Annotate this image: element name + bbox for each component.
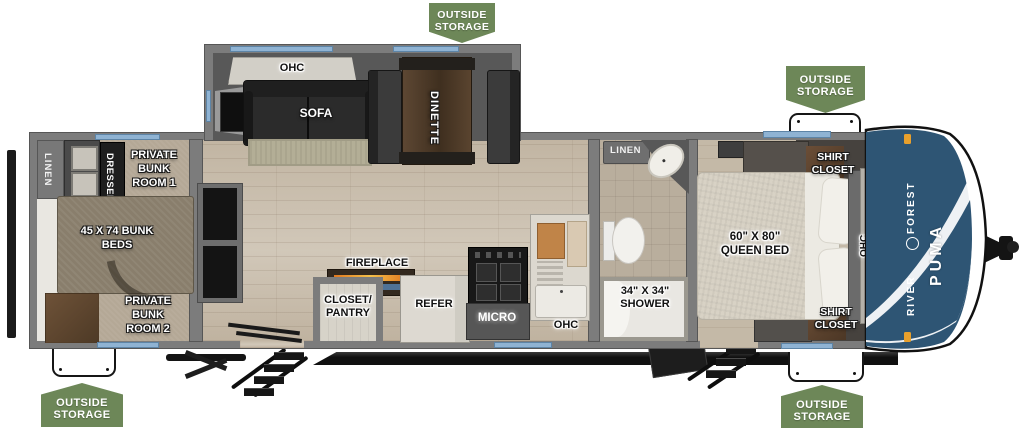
- linen-rear-label: LINEN: [42, 148, 53, 192]
- shower-label: 34" X 34" SHOWER: [606, 285, 684, 311]
- storage-door-bottom-left: [52, 349, 116, 377]
- badge-text: STORAGE: [41, 409, 123, 421]
- dinette-bench-right: [487, 70, 520, 164]
- outside-storage-badge-bottom-right: OUTSIDE STORAGE: [781, 385, 863, 428]
- rear-bumper: [7, 150, 16, 338]
- brand-puma: PUMA: [928, 206, 946, 286]
- cutting-board: [537, 223, 565, 259]
- bunk-room-1-label: PRIVATE BUNK ROOM 1: [124, 148, 184, 190]
- window-slide-side: [206, 90, 211, 122]
- window-bedroom-top: [763, 131, 831, 138]
- badge-text: STORAGE: [781, 411, 863, 423]
- dinette-bench-left: [368, 70, 402, 164]
- shirt-closet-top-label: SHIRT CLOSET: [802, 151, 864, 177]
- ohc-kitchen-label: OHC: [544, 319, 588, 331]
- bunkroom-wood-cabinet: [45, 293, 99, 343]
- kitchen-counter: [530, 214, 590, 321]
- front-cap: [864, 122, 990, 356]
- refer-label: REFER: [402, 298, 466, 310]
- badge-text: OUTSIDE: [429, 9, 495, 21]
- brand-forest-river: FOREST: [906, 168, 917, 234]
- badge-text: OUTSIDE: [786, 74, 865, 86]
- bunk-beds-label: 45 X 74 BUNK BEDS: [72, 224, 162, 252]
- outside-storage-badge-bottom-left: OUTSIDE STORAGE: [41, 383, 123, 427]
- window-slide-2: [393, 46, 459, 52]
- badge-text: STORAGE: [786, 86, 865, 98]
- fireplace-label: FIREPLACE: [332, 257, 422, 269]
- window-slide-1: [230, 46, 333, 52]
- bunkroom-cabinet: [64, 140, 100, 199]
- window-rear-top: [95, 134, 160, 140]
- window-bedroom-bottom: [781, 343, 833, 349]
- window-rear-bottom: [97, 342, 159, 348]
- badge-text: STORAGE: [429, 21, 495, 33]
- floorplan-canvas: OUTSIDE STORAGE OUTSIDE STORAGE OUTSIDE …: [0, 0, 1024, 441]
- outside-storage-badge-top-right: OUTSIDE STORAGE: [786, 66, 865, 113]
- badge-text: OUTSIDE: [41, 397, 123, 409]
- shirt-closet-bottom-label: SHIRT CLOSET: [802, 306, 870, 332]
- dinette-label: DINETTE: [428, 83, 440, 153]
- entry-steps-main: [226, 344, 318, 400]
- cap-logo-emblem: [906, 237, 919, 250]
- badge-text: OUTSIDE: [781, 399, 863, 411]
- toilet: [603, 215, 645, 265]
- linen-bath-label: LINEN: [603, 145, 648, 156]
- micro-label: MICRO: [470, 312, 524, 324]
- brand-forest-river-2: RIVER: [906, 252, 917, 316]
- wall-bath-left: [589, 140, 599, 341]
- entertainment-center: [197, 183, 243, 303]
- closet-pantry-label: CLOSET/ PANTRY: [316, 294, 380, 320]
- kitchen-sink: [535, 285, 587, 318]
- stove: [468, 247, 528, 306]
- rug: [248, 139, 372, 166]
- ohc-slide-label: OHC: [262, 62, 322, 74]
- outside-storage-badge-top: OUTSIDE STORAGE: [429, 3, 495, 43]
- bunk-room-2-label: PRIVATE BUNK ROOM 2: [118, 294, 178, 336]
- storage-door-bottom-right: [788, 352, 864, 382]
- queen-bed-label: 60" X 80" QUEEN BED: [700, 230, 810, 258]
- door-opening-bedroom: [700, 340, 758, 348]
- window-kitchen-bottom: [494, 342, 552, 348]
- sofa-label: SOFA: [286, 106, 346, 120]
